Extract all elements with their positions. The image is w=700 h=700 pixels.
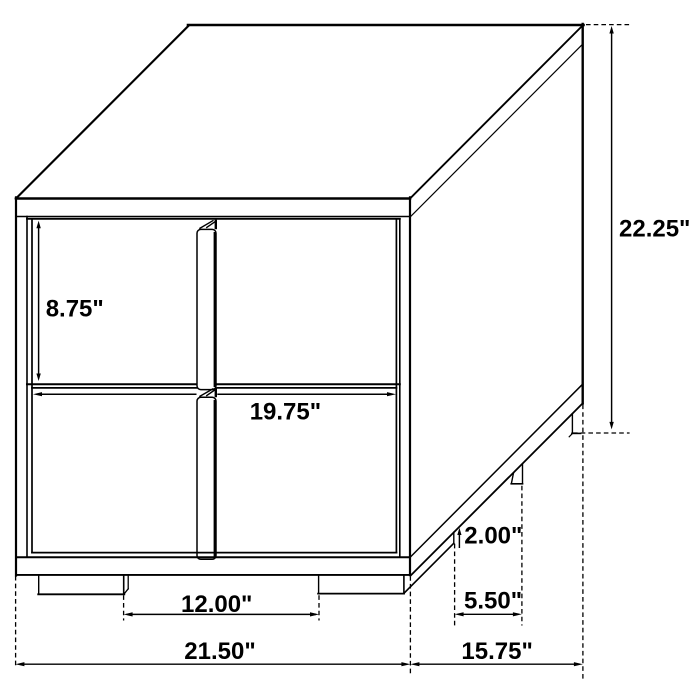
- svg-text:2.00": 2.00": [464, 523, 522, 550]
- svg-text:22.25": 22.25": [619, 216, 690, 243]
- svg-text:12.00": 12.00": [181, 591, 252, 618]
- svg-text:8.75": 8.75": [46, 296, 104, 323]
- svg-text:21.50": 21.50": [184, 638, 255, 665]
- svg-text:15.75": 15.75": [461, 638, 532, 665]
- svg-text:19.75": 19.75": [250, 398, 321, 425]
- svg-text:5.50": 5.50": [464, 587, 522, 614]
